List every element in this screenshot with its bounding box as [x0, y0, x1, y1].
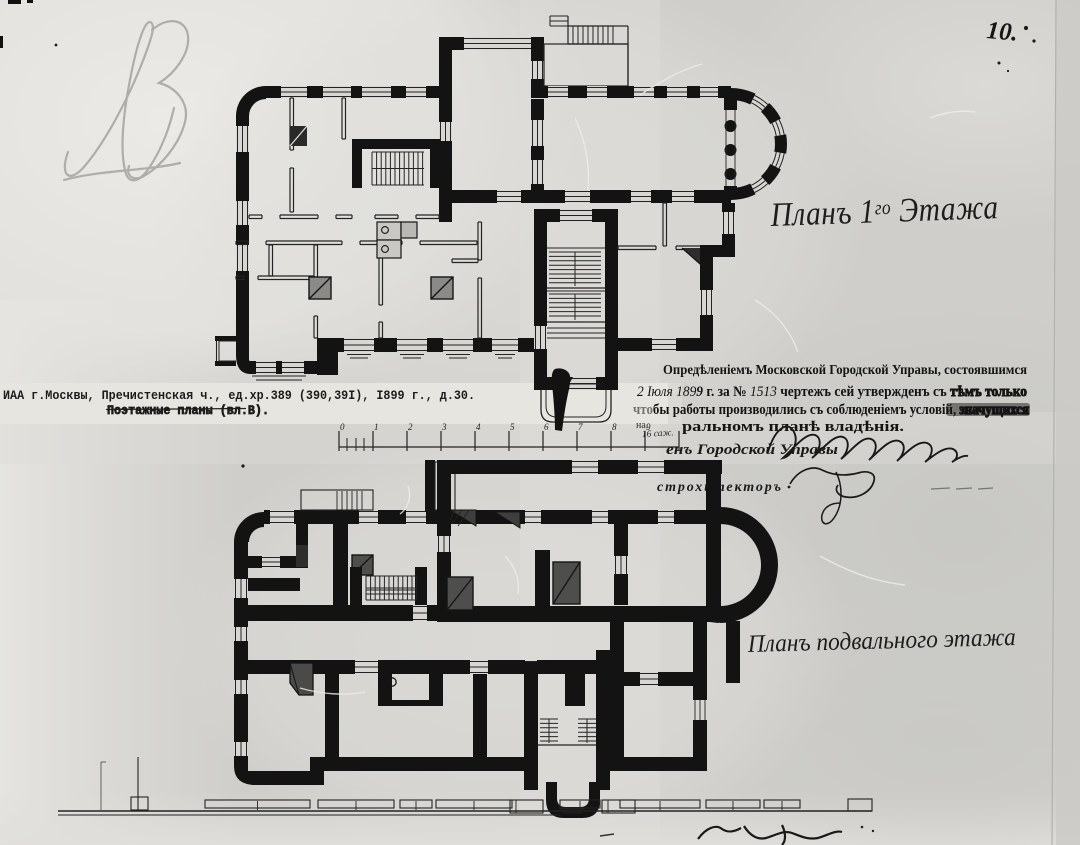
svg-text:енъ Городской Управы: енъ Городской Управы — [666, 442, 838, 458]
svg-text:1: 1 — [374, 422, 379, 432]
svg-text:10.: 10. — [985, 17, 1018, 47]
svg-text:7: 7 — [578, 422, 583, 432]
svg-text:6: 6 — [544, 422, 549, 432]
svg-text:ИАА г.Москвы, Пречистенская ч.: ИАА г.Москвы, Пречистенская ч., ед.хр.38… — [3, 389, 475, 403]
svg-text:0: 0 — [340, 422, 345, 432]
svg-text:2 Іюля 1899 г. за № 1513 черте: 2 Іюля 1899 г. за № 1513 чертежъ сей утв… — [637, 384, 1027, 400]
svg-text:3: 3 — [441, 422, 447, 432]
svg-text:4: 4 — [476, 422, 481, 432]
svg-text:чтобы работы производились съ: чтобы работы производились съ соблюденіе… — [633, 402, 1029, 418]
svg-text:ральномъ планѣ владѣнія.: ральномъ планѣ владѣнія. — [682, 419, 904, 435]
svg-text:Поэтажные планы (вл.В).: Поэтажные планы (вл.В). — [107, 404, 269, 418]
svg-text:на.: на. — [636, 420, 648, 431]
svg-text:2: 2 — [408, 422, 413, 432]
svg-text:5: 5 — [510, 422, 515, 432]
svg-text:Опредѣленіемъ Московской Город: Опредѣленіемъ Московской Городской Управ… — [663, 363, 1027, 378]
svg-text:8: 8 — [612, 422, 617, 432]
